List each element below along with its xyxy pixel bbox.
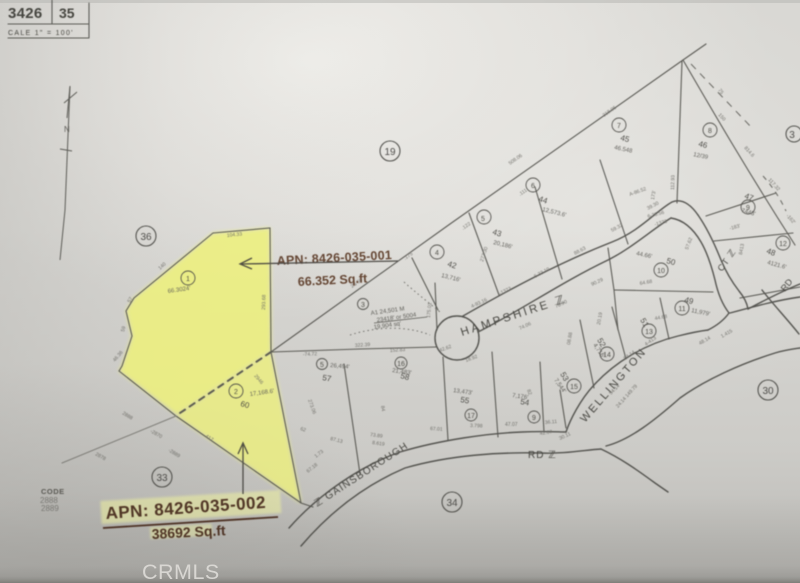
svg-text:47.07: 47.07 [505,422,518,428]
svg-text:2889: 2889 [41,504,59,513]
svg-text:17: 17 [467,413,475,420]
svg-text:1: 1 [186,276,190,283]
svg-text:322.39: 322.39 [355,342,371,349]
svg-text:34: 34 [446,498,458,509]
svg-text:6: 6 [531,183,535,190]
svg-text:13: 13 [645,329,653,336]
svg-text:3.798: 3.798 [470,423,483,429]
svg-text:RD ℤ: RD ℤ [528,450,557,461]
svg-text:4: 4 [435,250,439,257]
svg-text:CRMLS: CRMLS [142,560,220,583]
svg-text:3: 3 [789,130,795,141]
svg-text:N: N [64,125,70,134]
svg-text:293.68: 293.68 [261,294,268,310]
svg-text:5: 5 [481,216,485,223]
svg-text:2: 2 [234,389,238,396]
svg-text:CODE: CODE [41,487,65,496]
svg-text:15: 15 [570,384,578,391]
svg-text:9: 9 [532,415,536,422]
svg-text:33: 33 [156,473,168,484]
svg-text:-74.72: -74.72 [303,351,318,358]
svg-text:36: 36 [140,232,152,243]
svg-text:30: 30 [762,386,774,397]
svg-text:7: 7 [617,123,621,130]
svg-text:67.01: 67.01 [430,426,443,433]
svg-text:11: 11 [678,306,685,313]
svg-text:10: 10 [657,268,665,275]
svg-text:3: 3 [361,302,365,309]
svg-text:36.11: 36.11 [545,419,558,426]
svg-text:CALE 1" = 100': CALE 1" = 100' [8,30,74,37]
svg-text:35: 35 [59,5,75,21]
svg-text:8: 8 [708,128,712,135]
svg-text:12: 12 [779,241,787,248]
svg-text:112.93: 112.93 [670,175,677,190]
svg-text:3426: 3426 [8,5,43,22]
svg-text:16: 16 [397,361,405,368]
svg-text:19: 19 [384,147,396,158]
svg-text:152.83: 152.83 [390,347,406,354]
svg-text:5: 5 [320,362,324,369]
